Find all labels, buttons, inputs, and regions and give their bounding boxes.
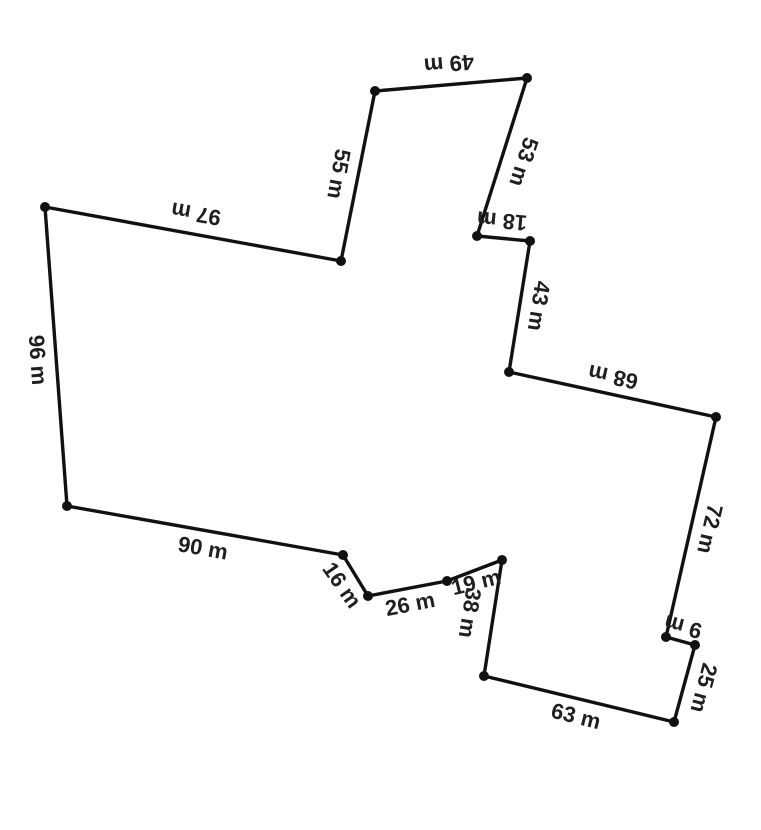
diagram-canvas: 97 m55 m49 m53 m18 m43 m68 m72 m9 m25 m6… — [0, 0, 761, 830]
vertex-point-1 — [336, 256, 346, 266]
vertex-point-6 — [504, 367, 514, 377]
vertex-point-7 — [711, 412, 721, 422]
vertex-point-3 — [522, 73, 532, 83]
vertex-point-10 — [669, 717, 679, 727]
edge-length-label-18m: 18 m — [476, 206, 528, 235]
edge-length-label-49m: 49 m — [423, 49, 475, 78]
diagram-background — [0, 0, 761, 830]
vertex-point-0 — [40, 202, 50, 212]
vertex-point-11 — [479, 671, 489, 681]
vertex-point-5 — [525, 236, 535, 246]
vertex-point-12 — [497, 555, 507, 565]
vertex-point-16 — [62, 501, 72, 511]
vertex-point-2 — [370, 86, 380, 96]
polygon-survey-diagram: 97 m55 m49 m53 m18 m43 m68 m72 m9 m25 m6… — [0, 0, 761, 830]
edge-length-label-96m: 96 m — [24, 334, 52, 386]
